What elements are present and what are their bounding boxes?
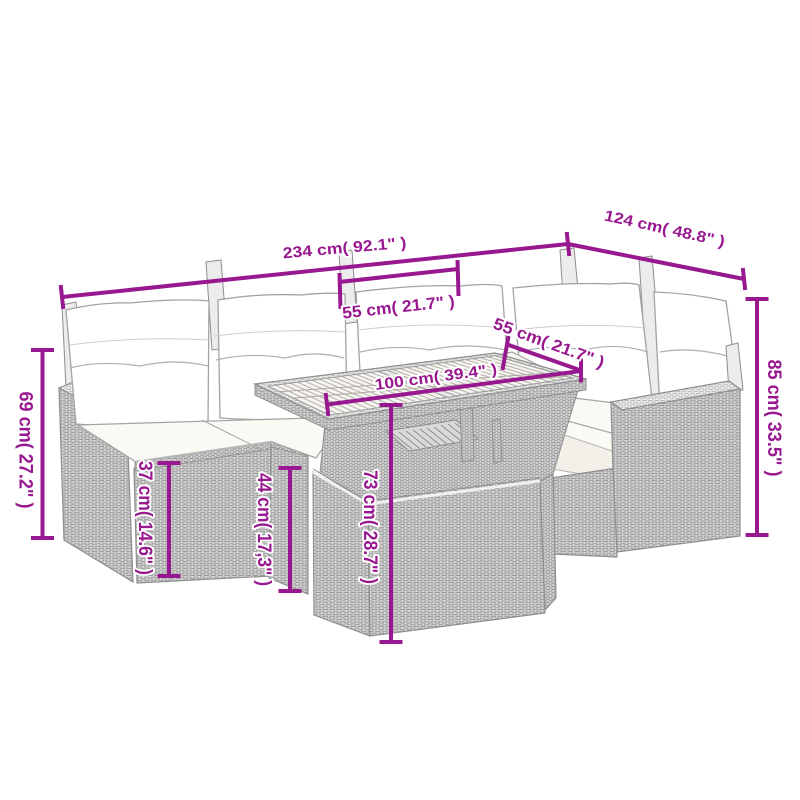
svg-text:44 cm( 17,3" ): 44 cm( 17,3" ) (253, 473, 275, 586)
svg-text:69 cm( 27.2" ): 69 cm( 27.2" ) (15, 392, 37, 509)
svg-text:73 cm( 28.7" ): 73 cm( 28.7" ) (359, 470, 381, 584)
svg-text:37 cm( 14.6" ): 37 cm( 14.6" ) (134, 461, 156, 575)
svg-text:85 cm( 33.5" ): 85 cm( 33.5" ) (763, 360, 785, 477)
